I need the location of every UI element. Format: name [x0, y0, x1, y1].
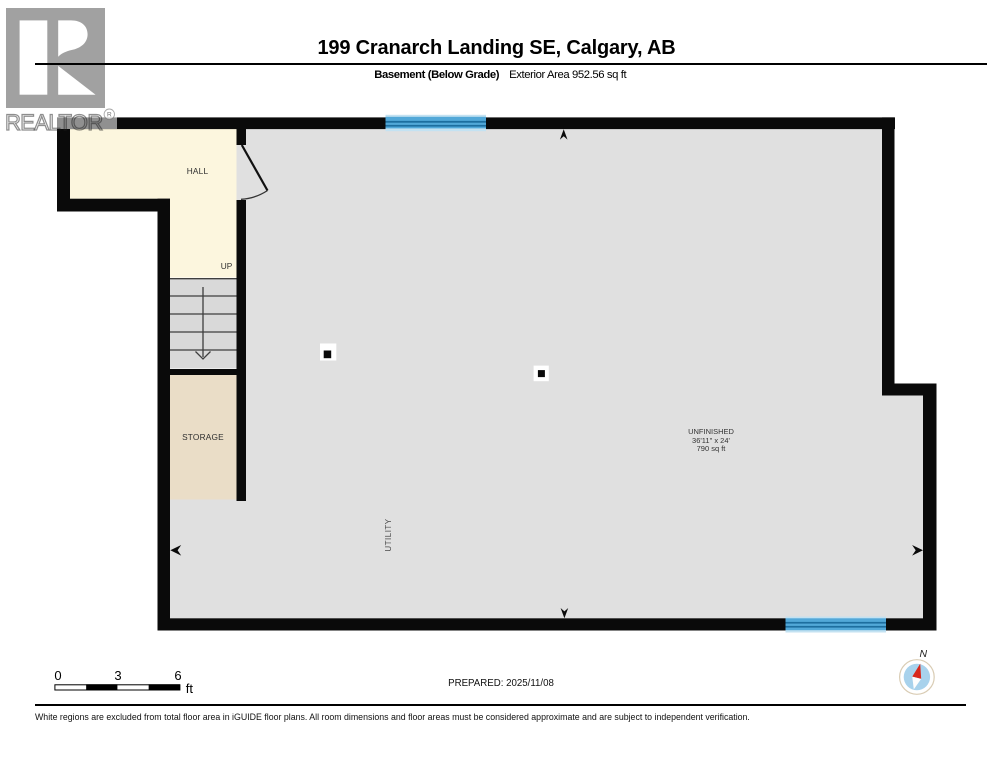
svg-text:R: R: [107, 112, 112, 119]
